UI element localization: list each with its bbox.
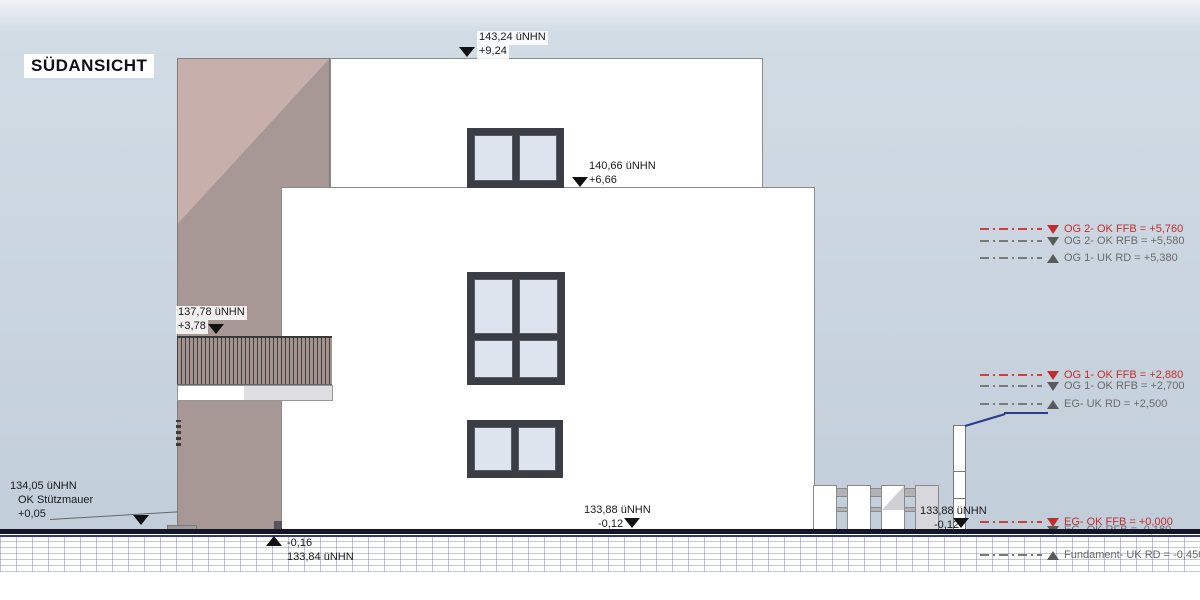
balcony-floor-band (177, 385, 333, 401)
window-pane (519, 135, 558, 181)
window-middle (467, 272, 565, 385)
fence-post (813, 485, 837, 532)
window-top (467, 128, 564, 188)
level-marker-down-icon (1047, 382, 1059, 391)
dash-dot-leader (980, 385, 1042, 387)
dash-dot-leader (980, 240, 1042, 242)
window-pane (518, 427, 556, 471)
dash-dot-leader (980, 403, 1042, 405)
level-row-og1-ukrd: OG 1- UK RD = +5,380 (980, 252, 1178, 264)
dash-dot-leader (980, 374, 1042, 376)
level-marker-up-icon (1047, 254, 1059, 263)
level-marker-down-icon (1047, 518, 1059, 527)
balcony-floor-shade (244, 386, 332, 400)
window-pane (474, 427, 512, 471)
window-pane (474, 340, 513, 378)
level-row-fundament-ukrd: Fundament- UK RD = -0,450 (980, 549, 1200, 561)
fence-post (847, 485, 871, 532)
level-row-og1-rfb: OG 1- OK RFB = +2,700 (980, 380, 1184, 392)
downpipe-bracket-marks (176, 420, 181, 446)
elevation-marker-down-icon (208, 324, 224, 334)
elevation-mark-upper: 140,66 üNHN +6,66 (589, 160, 656, 188)
elevation-marker-up-icon (266, 536, 282, 546)
elevation-marker-down-icon (953, 518, 969, 528)
level-row-eg-ffb: EG- OK FFB = +0,000 (980, 516, 1173, 528)
handrail-line (1004, 412, 1048, 414)
window-bottom (467, 420, 563, 478)
elevation-marker-down-icon (624, 518, 640, 528)
fence-post (881, 485, 905, 532)
level-marker-down-icon (1047, 237, 1059, 246)
balcony-railing (177, 336, 332, 385)
window-pane (474, 135, 513, 181)
elevation-drawing: SÜDANSICHT 143,24 üNHN +9,24 140,66 üNHN… (0, 0, 1200, 600)
level-marker-down-icon (1047, 225, 1059, 234)
window-pane (519, 279, 558, 334)
level-marker-up-icon (1047, 400, 1059, 409)
dash-dot-leader (980, 554, 1042, 556)
elevation-mark-ground-left: -0,16 133,84 üNHN (287, 537, 354, 565)
elevation-mark-ground-mid: 133,88 üNHN -0,12 (584, 504, 651, 532)
level-row-og2-rfb: OG 2- OK RFB = +5,580 (980, 235, 1184, 247)
ground-blue-line (0, 535, 1200, 537)
dash-dot-leader (980, 228, 1042, 230)
level-marker-up-icon (1047, 551, 1059, 560)
level-row-og2-ffb: OG 2- OK FFB = +5,760 (980, 223, 1183, 235)
level-marker-down-icon (1047, 371, 1059, 380)
dash-dot-leader (980, 521, 1042, 523)
pillar-joint (954, 498, 965, 499)
dash-dot-leader (980, 257, 1042, 259)
elevation-mark-retaining-wall: 134,05 üNHN OK Stützmauer +0,05 (10, 480, 93, 521)
level-row-eg-ukrd: EG- UK RD = +2,500 (980, 398, 1167, 410)
fence-post-shading (882, 486, 904, 510)
window-pane (474, 279, 513, 334)
elevation-marker-down-icon (133, 515, 149, 525)
elevation-mark-ridge: 143,24 üNHN +9,24 (477, 31, 548, 59)
elevation-marker-down-icon (572, 177, 588, 187)
pillar-joint (954, 471, 965, 472)
window-pane (519, 340, 558, 378)
elevation-marker-down-icon (459, 47, 475, 57)
drawing-title: SÜDANSICHT (24, 54, 154, 78)
